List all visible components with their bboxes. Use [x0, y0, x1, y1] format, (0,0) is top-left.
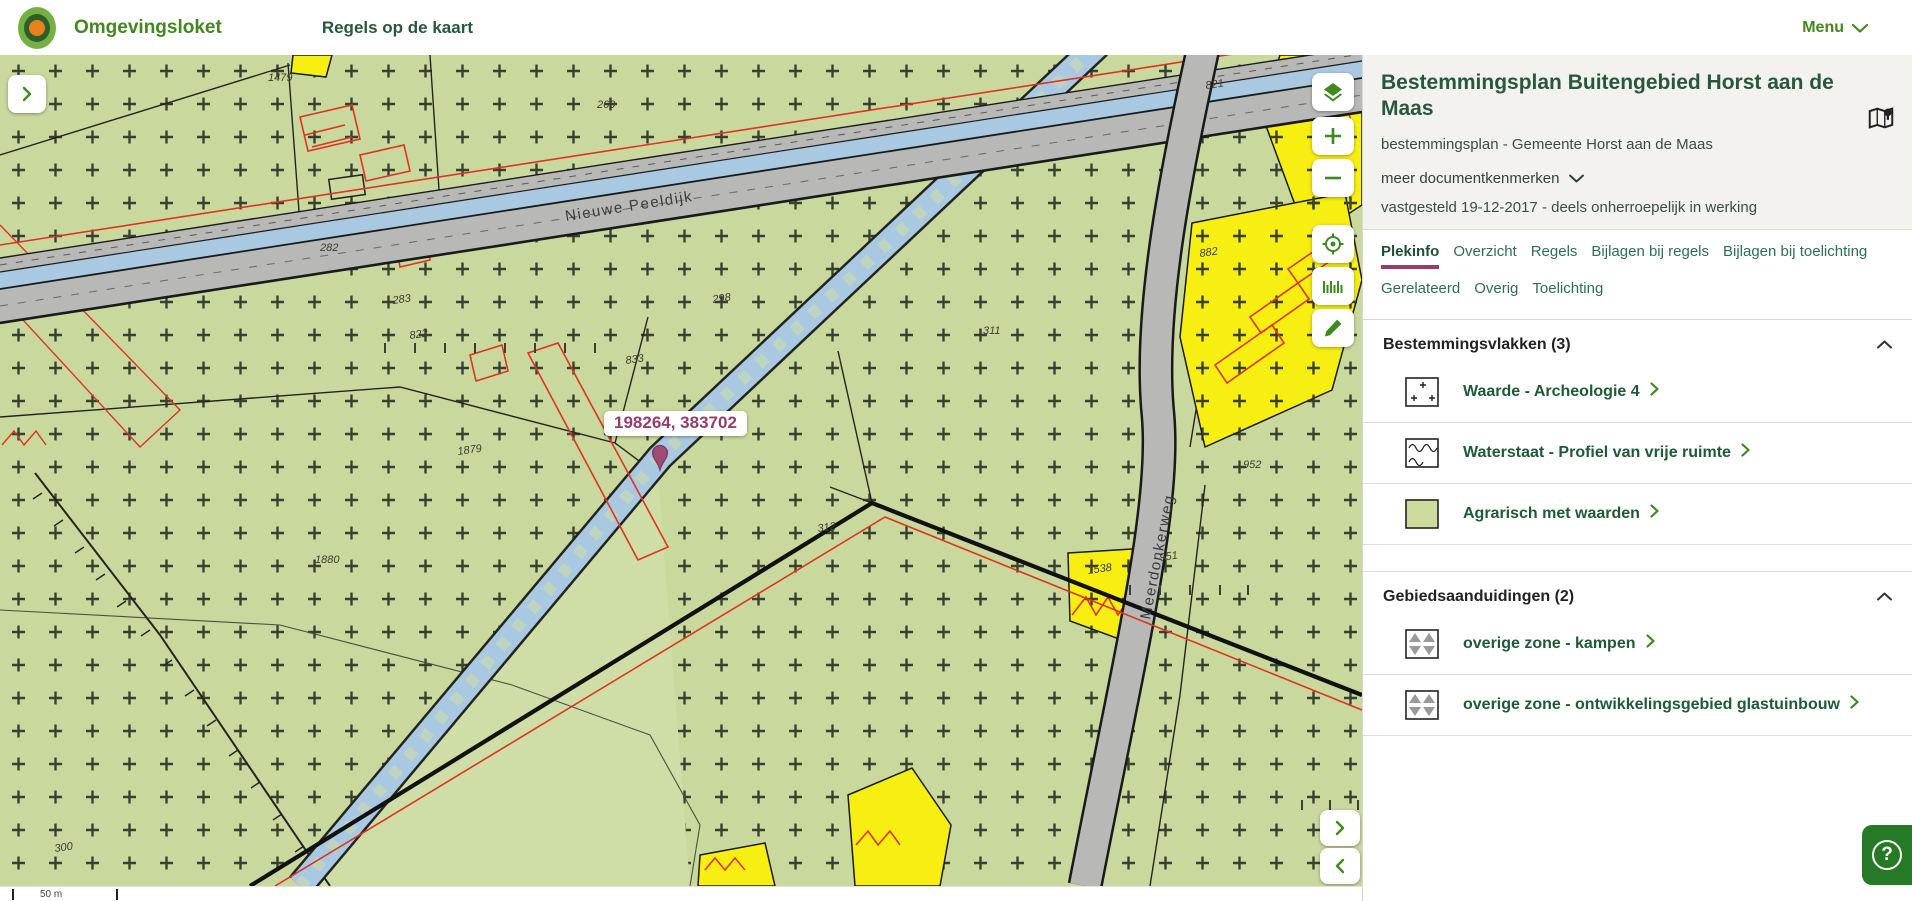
draw-button[interactable] — [1312, 309, 1354, 347]
tab-list: PlekinfoOverzichtRegelsBijlagen bij rege… — [1363, 230, 1912, 320]
section-gebiedsaanduidingen-2: Gebiedsaanduidingen (2)overige zone - ka… — [1363, 572, 1912, 736]
tab-regels[interactable]: Regels — [1531, 243, 1578, 269]
section-header-gebiedsaanduidingen-2[interactable]: Gebiedsaanduidingen (2) — [1363, 572, 1912, 614]
next-panel-button[interactable] — [1320, 810, 1360, 846]
ruler-icon — [1321, 274, 1345, 298]
plan-item-label: Waterstaat - Profiel van vrije ruimte — [1463, 443, 1750, 462]
menu-label: Menu — [1802, 19, 1844, 37]
plus-icon — [1323, 126, 1343, 146]
chevron-right-icon — [21, 86, 33, 102]
tab-plekinfo[interactable]: Plekinfo — [1381, 243, 1439, 269]
parcel-label: 1479 — [268, 72, 292, 84]
scale-tick — [116, 889, 118, 900]
chevron-up-icon — [1877, 336, 1892, 354]
plan-title: Bestemmingsplan Buitengebied Horst aan d… — [1381, 70, 1894, 123]
plan-item-label: overige zone - kampen — [1463, 634, 1655, 653]
chevron-right-icon — [1650, 382, 1659, 401]
chevron-right-icon — [1850, 695, 1859, 714]
locate-me-button[interactable] — [1312, 225, 1354, 263]
section-bestemmingsvlakken-3: Bestemmingsvlakken (3)Waarde - Archeolog… — [1363, 320, 1912, 545]
coordinate-tooltip: 198264, 383702 — [604, 411, 747, 436]
layers-icon — [1321, 80, 1345, 104]
plan-item-waterstaat-profiel-van-vrije-ruimte[interactable]: Waterstaat - Profiel van vrije ruimte — [1363, 423, 1912, 483]
nav-item-regels-op-de-kaart[interactable]: Regels op de kaart — [322, 18, 473, 38]
divider — [1363, 735, 1912, 736]
parcel-label: 269 — [596, 99, 615, 111]
tab-overig[interactable]: Overig — [1474, 280, 1518, 306]
parcel-label: 821 — [1205, 78, 1225, 92]
scale-tick — [12, 889, 14, 900]
tab-bijlagen-bij-regels[interactable]: Bijlagen bij regels — [1591, 243, 1709, 269]
plan-subtitle: bestemmingsplan - Gemeente Horst aan de … — [1381, 136, 1894, 153]
prev-panel-button[interactable] — [1320, 848, 1360, 884]
tab-overzicht[interactable]: Overzicht — [1453, 243, 1516, 269]
chevron-right-icon — [1646, 634, 1655, 653]
plan-item-label: Agrarisch met waarden — [1463, 504, 1659, 523]
chevron-right-icon — [1650, 504, 1659, 523]
tab-bijlagen-bij-toelichting[interactable]: Bijlagen bij toelichting — [1723, 243, 1867, 269]
chevron-down-icon — [1569, 174, 1584, 183]
help-button[interactable]: ? — [1862, 825, 1912, 885]
section-header-bestemmingsvlakken-3[interactable]: Bestemmingsvlakken (3) — [1363, 320, 1912, 362]
waves-pattern-icon — [1405, 438, 1439, 468]
map-canvas[interactable]: 1479269821282283298822833311882952312951… — [0, 55, 1362, 886]
parcel-label: 1880 — [315, 554, 340, 566]
chevron-up-icon — [1877, 588, 1892, 606]
plan-status: vastgesteld 19-12-2017 - deels onherroep… — [1381, 199, 1894, 216]
zoom-in-button[interactable] — [1312, 117, 1354, 155]
parcel-label: 311 — [983, 325, 1001, 337]
top-bar: Omgevingsloket Regels op de kaart Menu — [0, 0, 1912, 55]
measure-button[interactable] — [1312, 267, 1354, 305]
pencil-icon — [1321, 316, 1345, 340]
zoom-out-button[interactable] — [1312, 159, 1354, 197]
crosshair-icon — [1321, 232, 1345, 256]
layers-button[interactable] — [1312, 73, 1354, 111]
chevron-down-icon — [1852, 23, 1868, 33]
triangles-pattern-icon — [1405, 629, 1439, 659]
parcel-label: 882 — [1199, 246, 1219, 260]
plan-item-label: overige zone - ontwikkelingsgebied glast… — [1463, 695, 1859, 714]
archeology-pattern-icon — [1405, 377, 1439, 407]
open-left-panel-button[interactable] — [8, 75, 46, 113]
plan-header: Bestemmingsplan Buitengebied Horst aan d… — [1363, 55, 1912, 230]
minus-icon — [1323, 168, 1343, 188]
triangles-pattern-icon — [1405, 690, 1439, 720]
more-document-properties-link[interactable]: meer documentkenmerken — [1381, 170, 1584, 187]
question-mark-icon: ? — [1872, 840, 1902, 870]
chevron-right-icon — [1741, 443, 1750, 462]
parcel-label: 312 — [817, 521, 837, 535]
tab-gerelateerd[interactable]: Gerelateerd — [1381, 280, 1460, 306]
map-location-icon[interactable] — [1866, 103, 1896, 138]
plan-item-overige-zone-ontwikkelingsgebied-glastuinbouw[interactable]: overige zone - ontwikkelingsgebied glast… — [1363, 675, 1912, 735]
section-title: Bestemmingsvlakken (3) — [1383, 336, 1571, 354]
map-area: 1479269821282283298822833311882952312951… — [0, 55, 1362, 901]
tab-toelichting[interactable]: Toelichting — [1532, 280, 1603, 306]
parcel-label: 952 — [1243, 459, 1261, 471]
parcel-label: 282 — [319, 242, 338, 254]
plan-sections: Bestemmingsvlakken (3)Waarde - Archeolog… — [1363, 320, 1912, 736]
parcel-label: 822 — [409, 328, 429, 342]
plan-item-overige-zone-kampen[interactable]: overige zone - kampen — [1363, 614, 1912, 674]
plan-item-waarde-archeologie-4[interactable]: Waarde - Archeologie 4 — [1363, 362, 1912, 422]
scale-bar: 50 m — [0, 886, 1362, 901]
plan-item-agrarisch-met-waarden[interactable]: Agrarisch met waarden — [1363, 484, 1912, 544]
green-fill-icon — [1405, 499, 1439, 529]
menu-button[interactable]: Menu — [1802, 0, 1868, 55]
section-title: Gebiedsaanduidingen (2) — [1383, 588, 1574, 606]
chevron-right-icon — [1334, 820, 1346, 836]
plan-item-label: Waarde - Archeologie 4 — [1463, 382, 1659, 401]
more-document-properties-label: meer documentkenmerken — [1381, 170, 1559, 187]
section-gap — [1363, 545, 1912, 571]
chevron-left-icon — [1334, 858, 1346, 874]
omgevingsloket-app: Omgevingsloket Regels op de kaart Menu — [0, 0, 1912, 901]
brand-title: Omgevingsloket — [74, 17, 222, 39]
omgevingsloket-logo-icon — [18, 7, 56, 49]
scale-label: 50 m — [40, 889, 62, 900]
plan-info-panel: Bestemmingsplan Buitengebied Horst aan d… — [1362, 55, 1912, 901]
zoning-map: 1479269821282283298822833311882952312951… — [0, 55, 1362, 886]
